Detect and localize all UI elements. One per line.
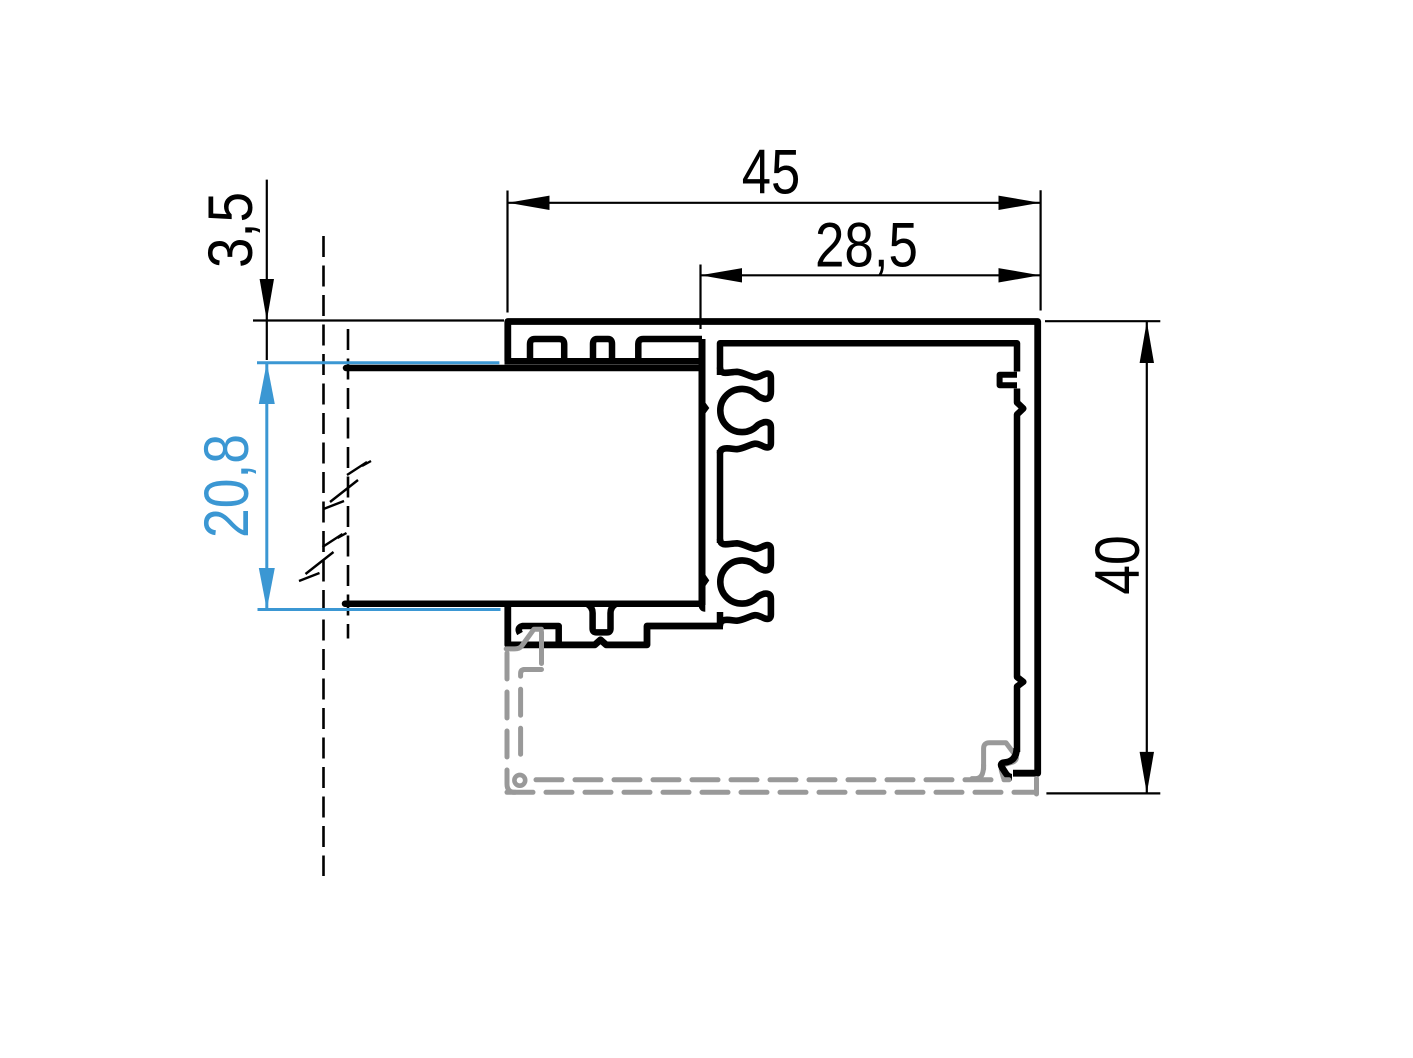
svg-text:28,5: 28,5	[815, 211, 918, 281]
svg-text:3,5: 3,5	[196, 192, 266, 268]
svg-text:45: 45	[742, 138, 801, 208]
svg-text:20,8: 20,8	[192, 434, 262, 538]
svg-text:40: 40	[1083, 535, 1153, 595]
